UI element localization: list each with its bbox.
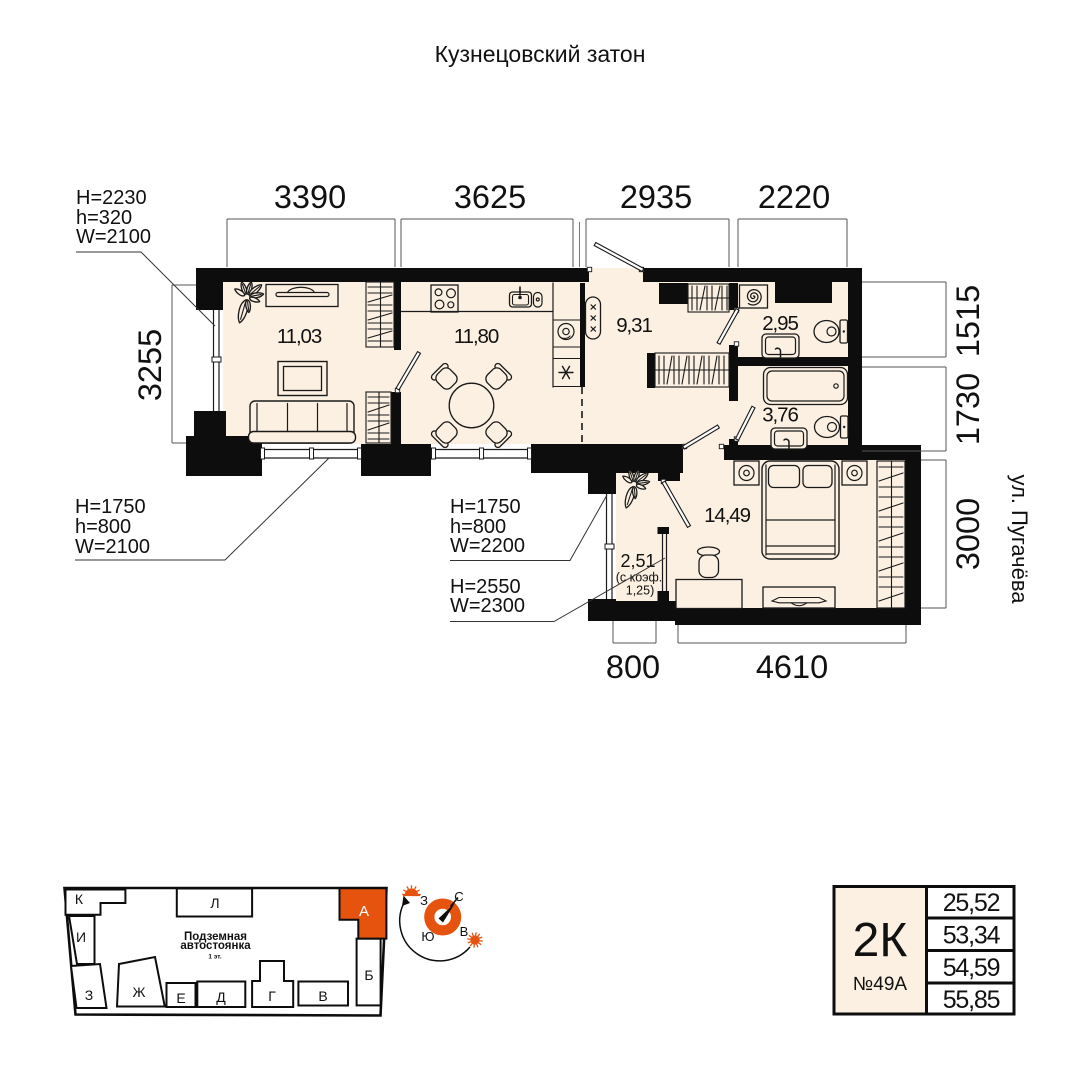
svg-text:ул. Пугачёва: ул. Пугачёва: [1007, 474, 1032, 604]
svg-text:В: В: [318, 988, 327, 1004]
svg-text:З: З: [420, 893, 428, 908]
svg-text:800: 800: [606, 649, 660, 685]
svg-text:2,51: 2,51: [620, 551, 655, 571]
svg-text:3390: 3390: [274, 179, 346, 215]
svg-text:25,52: 25,52: [943, 889, 1000, 917]
svg-text:1,25): 1,25): [626, 584, 655, 598]
svg-text:3255: 3255: [132, 329, 168, 401]
svg-text:2,95: 2,95: [762, 312, 798, 335]
svg-text:И: И: [76, 929, 86, 945]
svg-text:2К: 2К: [853, 914, 908, 967]
svg-text:4610: 4610: [756, 649, 828, 685]
svg-text:Л: Л: [210, 895, 219, 911]
svg-text:Кузнецовский затон: Кузнецовский затон: [435, 41, 646, 67]
svg-text:11,80: 11,80: [454, 325, 499, 348]
svg-text:3,76: 3,76: [762, 404, 798, 427]
svg-text:W=2300: W=2300: [450, 595, 525, 617]
svg-text:2220: 2220: [758, 179, 830, 215]
svg-text:W=2100: W=2100: [76, 226, 151, 248]
svg-text:55,85: 55,85: [943, 986, 1000, 1014]
svg-text:Б: Б: [364, 967, 373, 983]
svg-text:З: З: [85, 987, 93, 1003]
svg-text:В: В: [460, 924, 469, 939]
svg-text:2935: 2935: [620, 179, 692, 215]
svg-text:14,49: 14,49: [704, 504, 750, 527]
svg-text:W=2100: W=2100: [75, 536, 150, 558]
svg-text:К: К: [75, 891, 84, 907]
svg-text:h=800: h=800: [75, 516, 131, 538]
svg-text:С: С: [454, 889, 463, 904]
svg-text:1730: 1730: [950, 373, 986, 445]
svg-text:H=2230: H=2230: [76, 187, 147, 209]
svg-text:3000: 3000: [950, 498, 986, 570]
svg-text:Г: Г: [268, 988, 276, 1004]
svg-text:H=1750: H=1750: [450, 496, 521, 518]
svg-text:Е: Е: [176, 990, 185, 1006]
svg-text:Ж: Ж: [133, 984, 146, 1000]
svg-text:Д: Д: [216, 989, 226, 1005]
svg-text:9,31: 9,31: [616, 314, 652, 337]
svg-text:54,59: 54,59: [943, 954, 1000, 982]
svg-text:1515: 1515: [950, 285, 986, 357]
svg-text:Ю: Ю: [421, 929, 434, 944]
svg-text:А: А: [359, 903, 369, 920]
svg-text:1 эт.: 1 эт.: [208, 954, 222, 961]
svg-text:H=1750: H=1750: [75, 496, 146, 518]
svg-text:W=2200: W=2200: [450, 535, 525, 557]
svg-text:11,03: 11,03: [277, 325, 322, 348]
svg-text:автостоянка: автостоянка: [180, 940, 251, 952]
svg-text:3625: 3625: [454, 179, 526, 215]
svg-text:53,34: 53,34: [943, 922, 1001, 950]
svg-text:№49А: №49А: [853, 974, 908, 995]
